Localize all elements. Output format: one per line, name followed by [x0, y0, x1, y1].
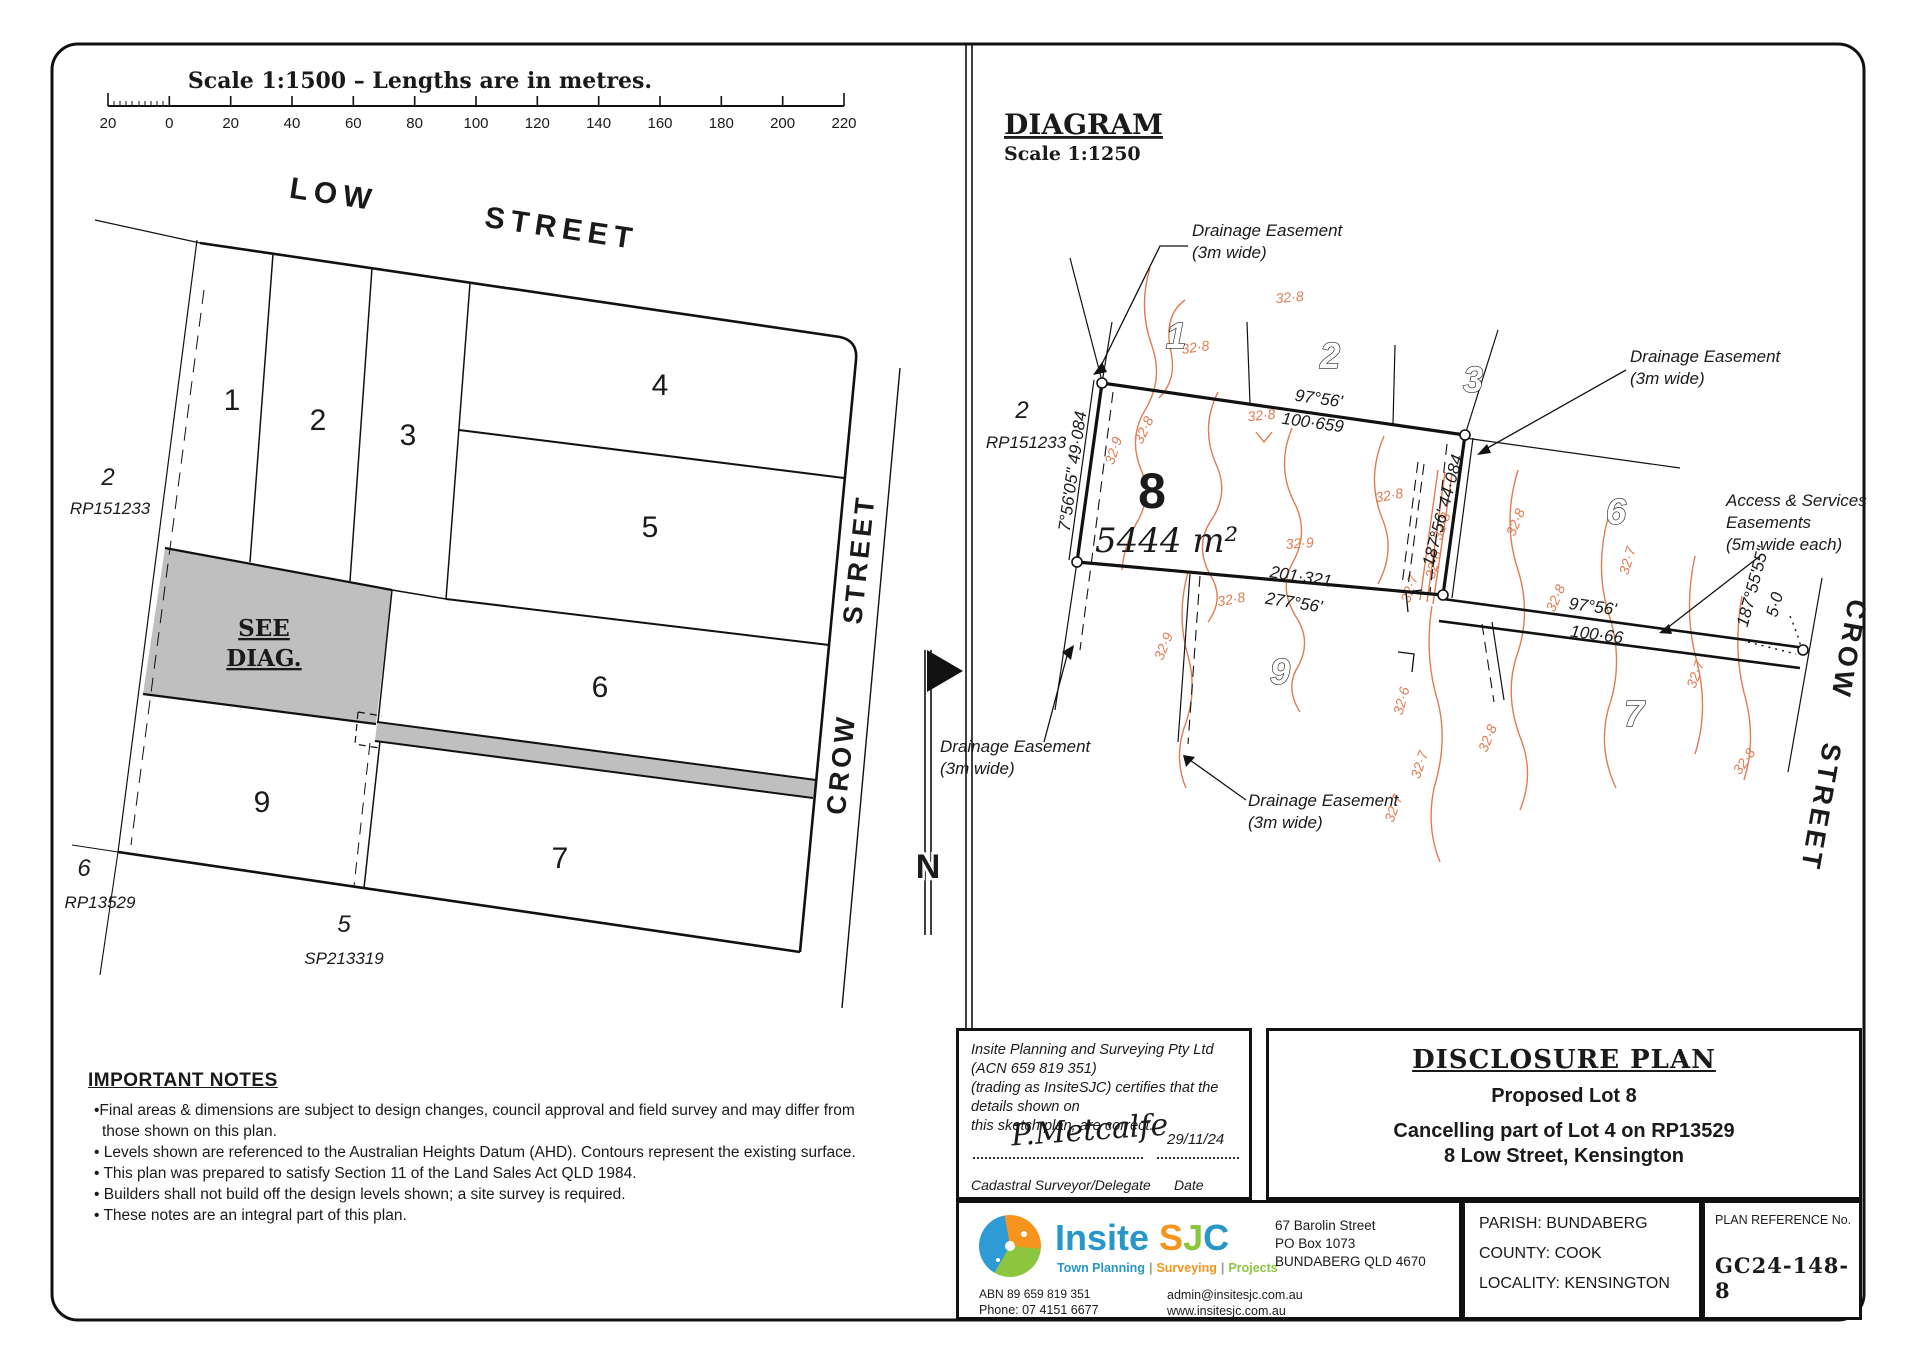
bearing-east: 187°56' 44·084 — [1419, 453, 1467, 569]
scale-tick-label: 180 — [709, 115, 734, 132]
company-email: admin@insitesjc.com.au — [1167, 1287, 1303, 1303]
scale-tick-label: 80 — [406, 115, 423, 132]
address-line3: BUNDABERG QLD 4670 — [1275, 1253, 1426, 1271]
plan-reference-block: PLAN REFERENCE No. GC24-148-8 — [1702, 1200, 1862, 1320]
scale-tick-label: 0 — [165, 115, 173, 132]
wordmark-j: J — [1183, 1217, 1203, 1258]
diagram-lot7-label: 7 — [1624, 693, 1646, 734]
important-notes: IMPORTANT NOTES •Final areas & dimension… — [88, 1070, 888, 1226]
important-notes-list: •Final areas & dimensions are subject to… — [88, 1100, 888, 1226]
date-label: Date — [1174, 1177, 1204, 1193]
diagram-lot2-label: 2 — [1319, 335, 1340, 376]
access-easement-line2: Easements — [1726, 513, 1812, 532]
low-street-label-2: STREET — [483, 201, 641, 256]
lot-3-label: 3 — [400, 419, 417, 452]
date-dotted-line — [1157, 1157, 1239, 1159]
drainage-easement-3-line1: Drainage Easement — [940, 737, 1092, 756]
contour-label: 32·8 — [1275, 288, 1305, 306]
scale-tick-label: 40 — [284, 115, 301, 132]
lot-7-label: 7 — [552, 842, 569, 875]
drainage-easement-2-line2: (3m wide) — [1630, 369, 1705, 388]
wordmark-s: S — [1159, 1217, 1183, 1258]
contour-label: 32·8 — [1729, 745, 1758, 777]
tagline-separator-1: | — [1145, 1261, 1157, 1275]
certification-block: Insite Planning and Surveying Pty Ltd (A… — [956, 1028, 1252, 1200]
diagram-scale: Scale 1:1250 — [1004, 143, 1141, 165]
address-line1: 67 Barolin Street — [1275, 1217, 1426, 1235]
diagram-lot9-label: 9 — [1270, 651, 1290, 692]
scale-tick-label: 200 — [770, 115, 795, 132]
company-abn: ABN 89 659 819 351 — [979, 1287, 1090, 1301]
contour-label: 32·7 — [1683, 657, 1708, 690]
adjoining-plan-sp213319: SP213319 — [304, 949, 384, 968]
crow-street-far-edge — [842, 368, 900, 1008]
disclosure-plan-sheet: Scale 1:1500 – Lengths are in metres. 20… — [0, 0, 1920, 1358]
company-wordmark: Insite SJC — [1055, 1217, 1229, 1259]
plan-reference-number: GC24-148-8 — [1715, 1253, 1859, 1303]
diagram-lot6-label: 6 — [1606, 491, 1627, 532]
contour-label: 32·9 — [1101, 434, 1125, 466]
lot8-area: 5444 m² — [1095, 521, 1238, 561]
address-line2: PO Box 1073 — [1275, 1235, 1426, 1253]
panel-divider — [966, 44, 972, 1028]
north-arrow: N — [916, 650, 963, 935]
wordmark-c: C — [1203, 1217, 1229, 1258]
bearing-top: 97°56' — [1294, 386, 1345, 412]
adjoining-plan-rp13529: RP13529 — [65, 893, 136, 912]
drainage-easement-3-line2: (3m wide) — [940, 759, 1015, 778]
scale-tick-label: 100 — [463, 115, 488, 132]
certification-line1: Insite Planning and Surveying Pty Ltd (A… — [971, 1041, 1237, 1079]
tagline-town-planning: Town Planning — [1057, 1261, 1145, 1275]
drainage-easement-1-line2: (3m wide) — [1192, 243, 1267, 262]
diagram-crow-street-2: STREET — [1795, 741, 1847, 875]
parish-value: PARISH: BUNDABERG — [1479, 1215, 1685, 1233]
north-arrow-letter: N — [916, 848, 941, 886]
scale-tick-label: 140 — [586, 115, 611, 132]
plan-subtitle: Proposed Lot 8 — [1269, 1085, 1859, 1108]
low-street-label-1: LOW — [287, 172, 379, 218]
note-item: • Levels shown are referenced to the Aus… — [88, 1142, 888, 1163]
drainage-easement-4-line1: Drainage Easement — [1248, 791, 1400, 810]
crow-street-label-1: CROW — [821, 712, 861, 816]
distance-crow: 5·0 — [1762, 590, 1787, 619]
adjoining-lot2: 2 — [100, 464, 114, 491]
adjoining-lot6: 6 — [77, 855, 91, 882]
certification-date: 29/11/24 — [1167, 1131, 1224, 1148]
scale-tick-label: 20 — [222, 115, 239, 132]
tagline-surveying: Surveying — [1156, 1261, 1216, 1275]
access-easement-line3: (5m wide each) — [1726, 535, 1842, 554]
contour-label: 32·6 — [1390, 685, 1413, 716]
tagline-separator-2: | — [1217, 1261, 1229, 1275]
diagram-adjoining-lot2: 2 — [1014, 397, 1028, 424]
important-notes-heading: IMPORTANT NOTES — [88, 1070, 888, 1092]
scale-bar: Scale 1:1500 – Lengths are in metres. 20… — [100, 68, 857, 132]
scale-tick-label: 120 — [525, 115, 550, 132]
diagram-adjoining-plan: RP151233 — [986, 433, 1067, 452]
signature-dotted-line — [973, 1157, 1143, 1159]
surveyor-signature: P.Metcalfe — [1010, 1108, 1169, 1154]
diagram-title: DIAGRAM — [1004, 108, 1163, 141]
lot-2-label: 2 — [310, 404, 327, 437]
company-website: www.insitesjc.com.au — [1167, 1303, 1303, 1319]
lot8-number: 8 — [1138, 463, 1166, 519]
contour-label: 32·9 — [1285, 534, 1314, 552]
see-diag-line1: SEE — [238, 615, 290, 642]
note-item: • These notes are an integral part of th… — [88, 1205, 888, 1226]
scale-tick-label: 220 — [831, 115, 856, 132]
lot-4-label: 4 — [652, 369, 669, 402]
lot-5-label: 5 — [642, 511, 659, 544]
note-item: • Builders shall not build off the desig… — [88, 1184, 888, 1205]
wordmark-insite: Insite — [1055, 1217, 1149, 1258]
locality-value: LOCALITY: KENSINGTON — [1479, 1275, 1685, 1293]
lot-9-label: 9 — [254, 786, 271, 819]
lot-1-label: 1 — [224, 384, 241, 417]
access-easement-line1: Access & Services — [1725, 491, 1867, 510]
contour-label: 32·8 — [1503, 506, 1528, 538]
contour-label: 32·8 — [1475, 722, 1500, 754]
plan-reference-label: PLAN REFERENCE No. — [1715, 1213, 1859, 1227]
surveyor-role-label: Cadastral Surveyor/Delegate — [971, 1177, 1151, 1193]
county-value: COUNTY: COOK — [1479, 1245, 1685, 1263]
diagram-lot3-label: 3 — [1463, 359, 1483, 400]
adjoining-lot5: 5 — [337, 911, 351, 938]
drainage-easement-2-line1: Drainage Easement — [1630, 347, 1782, 366]
contour-label: 32·8 — [1542, 582, 1568, 614]
drainage-easement-4-line2: (3m wide) — [1248, 813, 1323, 832]
distance-south: 201·321 — [1268, 562, 1334, 591]
lot-6-label: 6 — [592, 671, 609, 704]
note-item: •Final areas & dimensions are subject to… — [88, 1100, 888, 1142]
tagline-projects: Projects — [1228, 1261, 1277, 1275]
see-diag-line2: DIAG. — [226, 645, 301, 672]
scale-tick-label: 60 — [345, 115, 362, 132]
shaded-access-strip — [375, 723, 816, 798]
company-phone: Phone: 07 4151 6677 — [979, 1303, 1099, 1317]
distance-strip: 100·66 — [1569, 622, 1625, 648]
admin-block: PARISH: BUNDABERG COUNTY: COOK LOCALITY:… — [1462, 1200, 1702, 1320]
scale-tick-labels: 20020406080100120140160180200220 — [100, 115, 857, 132]
company-address: 67 Barolin Street PO Box 1073 BUNDABERG … — [1275, 1217, 1426, 1271]
contour-label: 32·8 — [1130, 414, 1156, 446]
scale-bar-title: Scale 1:1500 – Lengths are in metres. — [188, 68, 652, 94]
scale-tick-label: 20 — [100, 115, 117, 132]
detail-diagram: DIAGRAM Scale 1:1250 32·832·832·932·832·… — [940, 108, 1872, 874]
note-item: • This plan was prepared to satisfy Sect… — [88, 1163, 888, 1184]
contour-label: 32·7 — [1616, 544, 1639, 577]
overview-plan: LOW STREET STREET CROW 1 2 3 4 5 6 7 9 S… — [65, 172, 963, 1008]
diagram-lot1-label: 1 — [1166, 315, 1186, 356]
drainage-easement-1-line1: Drainage Easement — [1192, 221, 1344, 240]
plan-address-line: 8 Low Street, Kensington — [1269, 1145, 1859, 1168]
contour-label: 32·8 — [1374, 485, 1405, 506]
contour-label: 32·9 — [1151, 630, 1176, 662]
company-tagline: Town Planning|Surveying|Projects — [1057, 1261, 1278, 1275]
adjoining-plan-rp151233: RP151233 — [70, 499, 151, 518]
scale-tick-label: 160 — [647, 115, 672, 132]
insitesjc-logo-icon — [979, 1215, 1041, 1277]
title-block: DISCLOSURE PLAN Proposed Lot 8 Cancellin… — [1266, 1028, 1862, 1200]
company-block: Insite SJC Town Planning|Surveying|Proje… — [956, 1200, 1462, 1320]
contour-label: 32·7 — [1407, 748, 1431, 781]
plan-title: DISCLOSURE PLAN — [1269, 1045, 1859, 1075]
bearing-strip: 97°56' — [1568, 594, 1619, 619]
signature-row: P.Metcalfe 29/11/24 — [971, 1109, 1237, 1173]
crow-street-label-2: STREET — [837, 493, 880, 626]
plan-cancelling-line: Cancelling part of Lot 4 on RP13529 — [1269, 1120, 1859, 1143]
contour-label: 32·8 — [1216, 589, 1247, 610]
company-emails: admin@insitesjc.com.au www.insitesjc.com… — [1167, 1287, 1303, 1319]
